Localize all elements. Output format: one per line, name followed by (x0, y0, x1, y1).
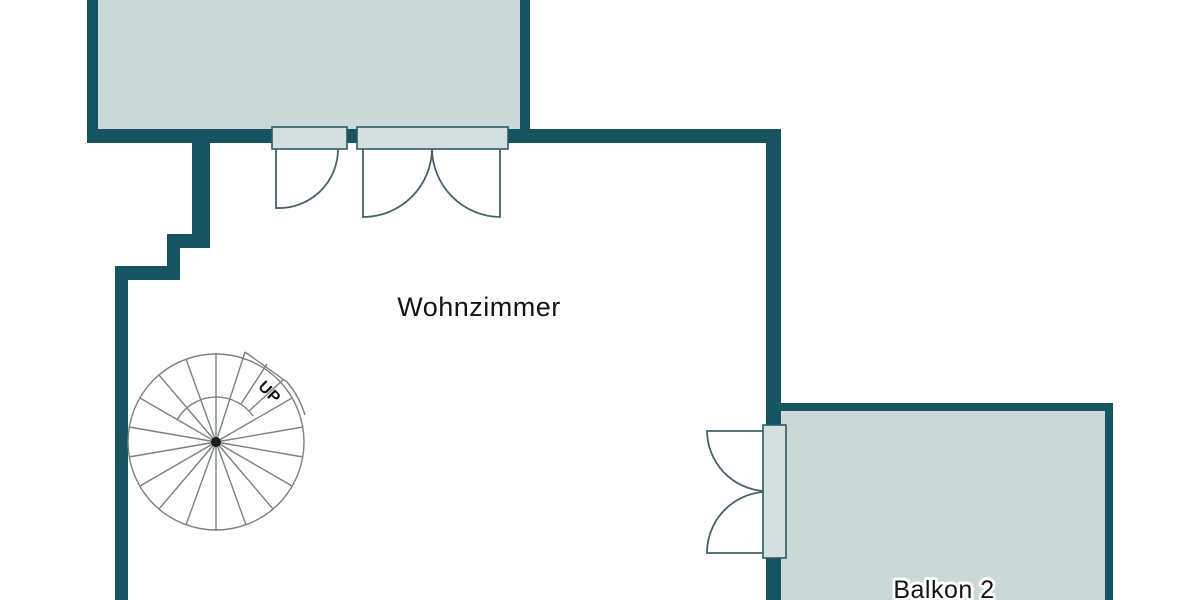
balcony-2-label: Balkon 2 (893, 576, 994, 600)
terrace-single-door-frame (272, 127, 347, 149)
top-wall-left-segment (87, 129, 273, 143)
left-jog-wall-upper (192, 143, 210, 248)
top-wall-right-segment (508, 129, 781, 143)
balcony-top-wall (766, 403, 1113, 411)
balcony-right-wall (1105, 403, 1113, 600)
floor-plan-page: Wohnzimmer Balkon 2 UP (0, 0, 1200, 600)
right-wall-lower (766, 558, 781, 600)
balcony-2-area (779, 405, 1109, 600)
living-room-left-wall (115, 266, 128, 600)
stair-center-post (211, 437, 221, 447)
door-mullion (347, 129, 357, 143)
floor-plan-drawing: Wohnzimmer Balkon 2 UP (0, 0, 1200, 600)
terrace-right-wall (520, 0, 530, 143)
terrace-double-door-frame (357, 127, 508, 149)
terrace-area (90, 0, 528, 140)
right-wall-upper (766, 129, 781, 425)
living-room-label: Wohnzimmer (397, 292, 561, 322)
balcony-door-frame (763, 425, 786, 558)
terrace-left-wall (87, 0, 98, 143)
